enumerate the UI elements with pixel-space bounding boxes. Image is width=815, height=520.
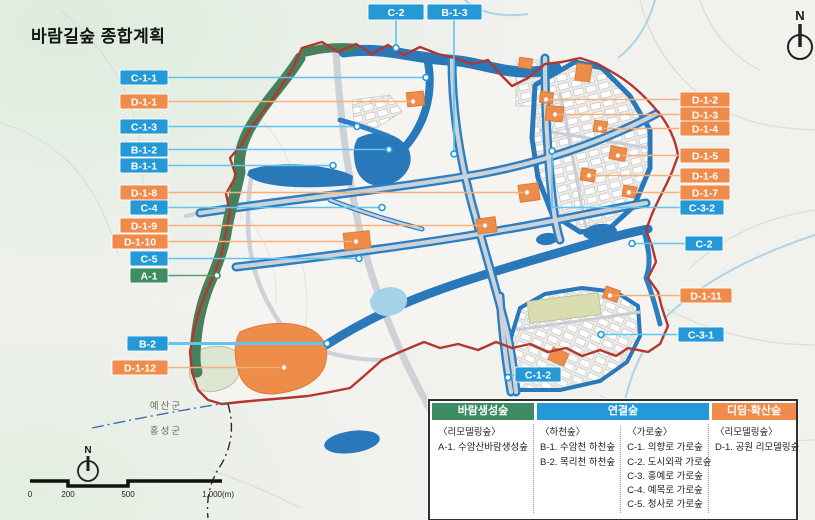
- callout-anchor-dot: [549, 148, 555, 154]
- legend-item: C-5. 청사로 가로숲: [627, 498, 711, 512]
- legend-group-title: 〈리모델링숲〉: [438, 426, 528, 440]
- legend-item: C-1. 의향로 가로숲: [627, 441, 711, 455]
- page-title: 바람길숲 종합계획: [31, 22, 165, 47]
- callout-anchor-dot: [451, 151, 457, 157]
- callout-anchor-dot: [615, 153, 621, 159]
- legend-item: A-1. 수암산바람생성숲: [438, 441, 528, 455]
- callout-anchor-dot: [386, 147, 392, 153]
- legend-item: B-2. 목리천 하천숲: [540, 456, 615, 470]
- svg-text:N: N: [795, 8, 804, 23]
- legend-group: 〈리모델링숲〉A-1. 수암산바람생성숲: [438, 426, 528, 456]
- legend-group-title: 〈하천숲〉: [540, 426, 615, 440]
- legend-group-title: 〈리모델링숲〉: [715, 426, 799, 440]
- callout-anchor-dot: [524, 190, 530, 196]
- callout-label: B-1-3: [441, 7, 467, 19]
- callout-anchor-dot: [482, 223, 488, 229]
- callout-anchor-dot: [214, 273, 220, 279]
- callout-label: D-1-3: [692, 109, 718, 121]
- wind-path-forest-plan-map: 예산군 홍성군 0 200 500 1,000(m) N N C-2B-1-3C…: [0, 0, 815, 520]
- callout-anchor-dot: [356, 256, 362, 262]
- callout-anchor-dot: [410, 99, 416, 105]
- legend-group-title: 〈가로숲〉: [627, 426, 711, 440]
- callout-label: D-1-1: [131, 96, 157, 108]
- legend-item: B-1. 수암천 하천숲: [540, 441, 615, 455]
- callout-label: D-1-2: [692, 94, 718, 106]
- callout-label: D-1-11: [690, 290, 722, 302]
- callout-anchor-dot: [353, 239, 359, 245]
- legend-group: 〈하천숲〉B-1. 수암천 하천숲B-2. 목리천 하천숲: [540, 426, 615, 513]
- callout-label: C-2: [696, 238, 713, 250]
- callout-label: C-1-3: [131, 121, 157, 133]
- legend-body-row: 〈리모델링숲〉A-1. 수암산바람생성숲〈하천숲〉B-1. 수암천 하천숲B-2…: [430, 420, 796, 519]
- scale-tick-500: 500: [121, 490, 135, 499]
- callout-label: C-3-2: [689, 202, 715, 214]
- callout-label: D-1-8: [131, 187, 157, 199]
- legend-group: 〈가로숲〉C-1. 의향로 가로숲C-2. 도시외곽 가로숲C-3. 홍예로 가…: [620, 426, 711, 513]
- callout-label: C-1-1: [131, 72, 157, 84]
- callout-anchor-dot: [607, 293, 613, 299]
- callout-anchor-dot: [330, 163, 336, 169]
- callout-label: C-4: [141, 202, 158, 214]
- legend-item: D-1. 공원 리모델링숲: [715, 441, 799, 455]
- callout-anchor-dot: [324, 341, 330, 347]
- callout-anchor-dot: [281, 365, 287, 371]
- callout-anchor-dot: [586, 173, 592, 179]
- county-label-yesan: 예산군: [150, 401, 182, 412]
- callout-anchor-dot: [379, 205, 385, 211]
- legend-header-2: 디딤·확산숲: [712, 403, 796, 420]
- callout-label: B-1-2: [131, 144, 157, 156]
- callout-label: C-5: [141, 253, 158, 265]
- callout-label: A-1: [141, 270, 158, 282]
- scale-tick-0: 0: [28, 490, 33, 499]
- scale-tick-200: 200: [61, 490, 75, 499]
- legend-column-1: 〈하천숲〉B-1. 수암천 하천숲B-2. 목리천 하천숲〈가로숲〉C-1. 의…: [533, 424, 708, 513]
- callout-anchor-dot: [543, 97, 549, 103]
- callout-anchor-dot: [552, 112, 558, 118]
- callout-label: D-1-10: [124, 236, 156, 248]
- callout-label: D-1-4: [692, 123, 718, 135]
- callout-label: B-1-1: [131, 160, 157, 172]
- legend-item: C-4. 예목로 가로숲: [627, 484, 711, 498]
- callout-label: C-1-2: [525, 369, 551, 381]
- legend-table: 바람생성숲연결숲디딤·확산숲〈리모델링숲〉A-1. 수암산바람생성숲〈하천숲〉B…: [428, 399, 798, 520]
- callout-label: D-1-12: [124, 362, 156, 374]
- legend-column-0: 〈리모델링숲〉A-1. 수암산바람생성숲: [432, 424, 533, 513]
- callout-label: B-2: [139, 338, 156, 350]
- legend-header-row: 바람생성숲연결숲디딤·확산숲: [430, 401, 796, 420]
- callout-anchor-dot: [354, 124, 360, 130]
- legend-group: 〈리모델링숲〉D-1. 공원 리모델링숲: [715, 426, 799, 456]
- callout-anchor-dot: [629, 241, 635, 247]
- legend-header-0: 바람생성숲: [432, 403, 534, 420]
- county-label-hongseong: 홍성군: [150, 425, 182, 437]
- legend-item: C-2. 도시외곽 가로숲: [627, 456, 711, 470]
- callout-label: D-1-5: [692, 150, 718, 162]
- callout-anchor-dot: [626, 190, 632, 196]
- legend-header-1: 연결숲: [537, 403, 709, 420]
- legend-item: C-3. 홍예로 가로숲: [627, 470, 711, 484]
- scale-tick-1000: 1,000(m): [202, 490, 234, 499]
- callout-label: C-2: [388, 7, 405, 19]
- callout-anchor-dot: [505, 375, 511, 381]
- callout-label: D-1-9: [131, 220, 157, 232]
- callout-anchor-dot: [598, 332, 604, 338]
- callout-anchor-dot: [393, 45, 399, 51]
- callout-label: D-1-7: [692, 187, 718, 199]
- svg-text:N: N: [84, 445, 91, 456]
- callout-anchor-dot: [597, 126, 603, 132]
- legend-column-2: 〈리모델링숲〉D-1. 공원 리모델링숲: [708, 424, 795, 513]
- callout-anchor-dot: [423, 75, 429, 81]
- callout-label: D-1-6: [692, 170, 718, 182]
- callout-label: C-3-1: [688, 329, 714, 341]
